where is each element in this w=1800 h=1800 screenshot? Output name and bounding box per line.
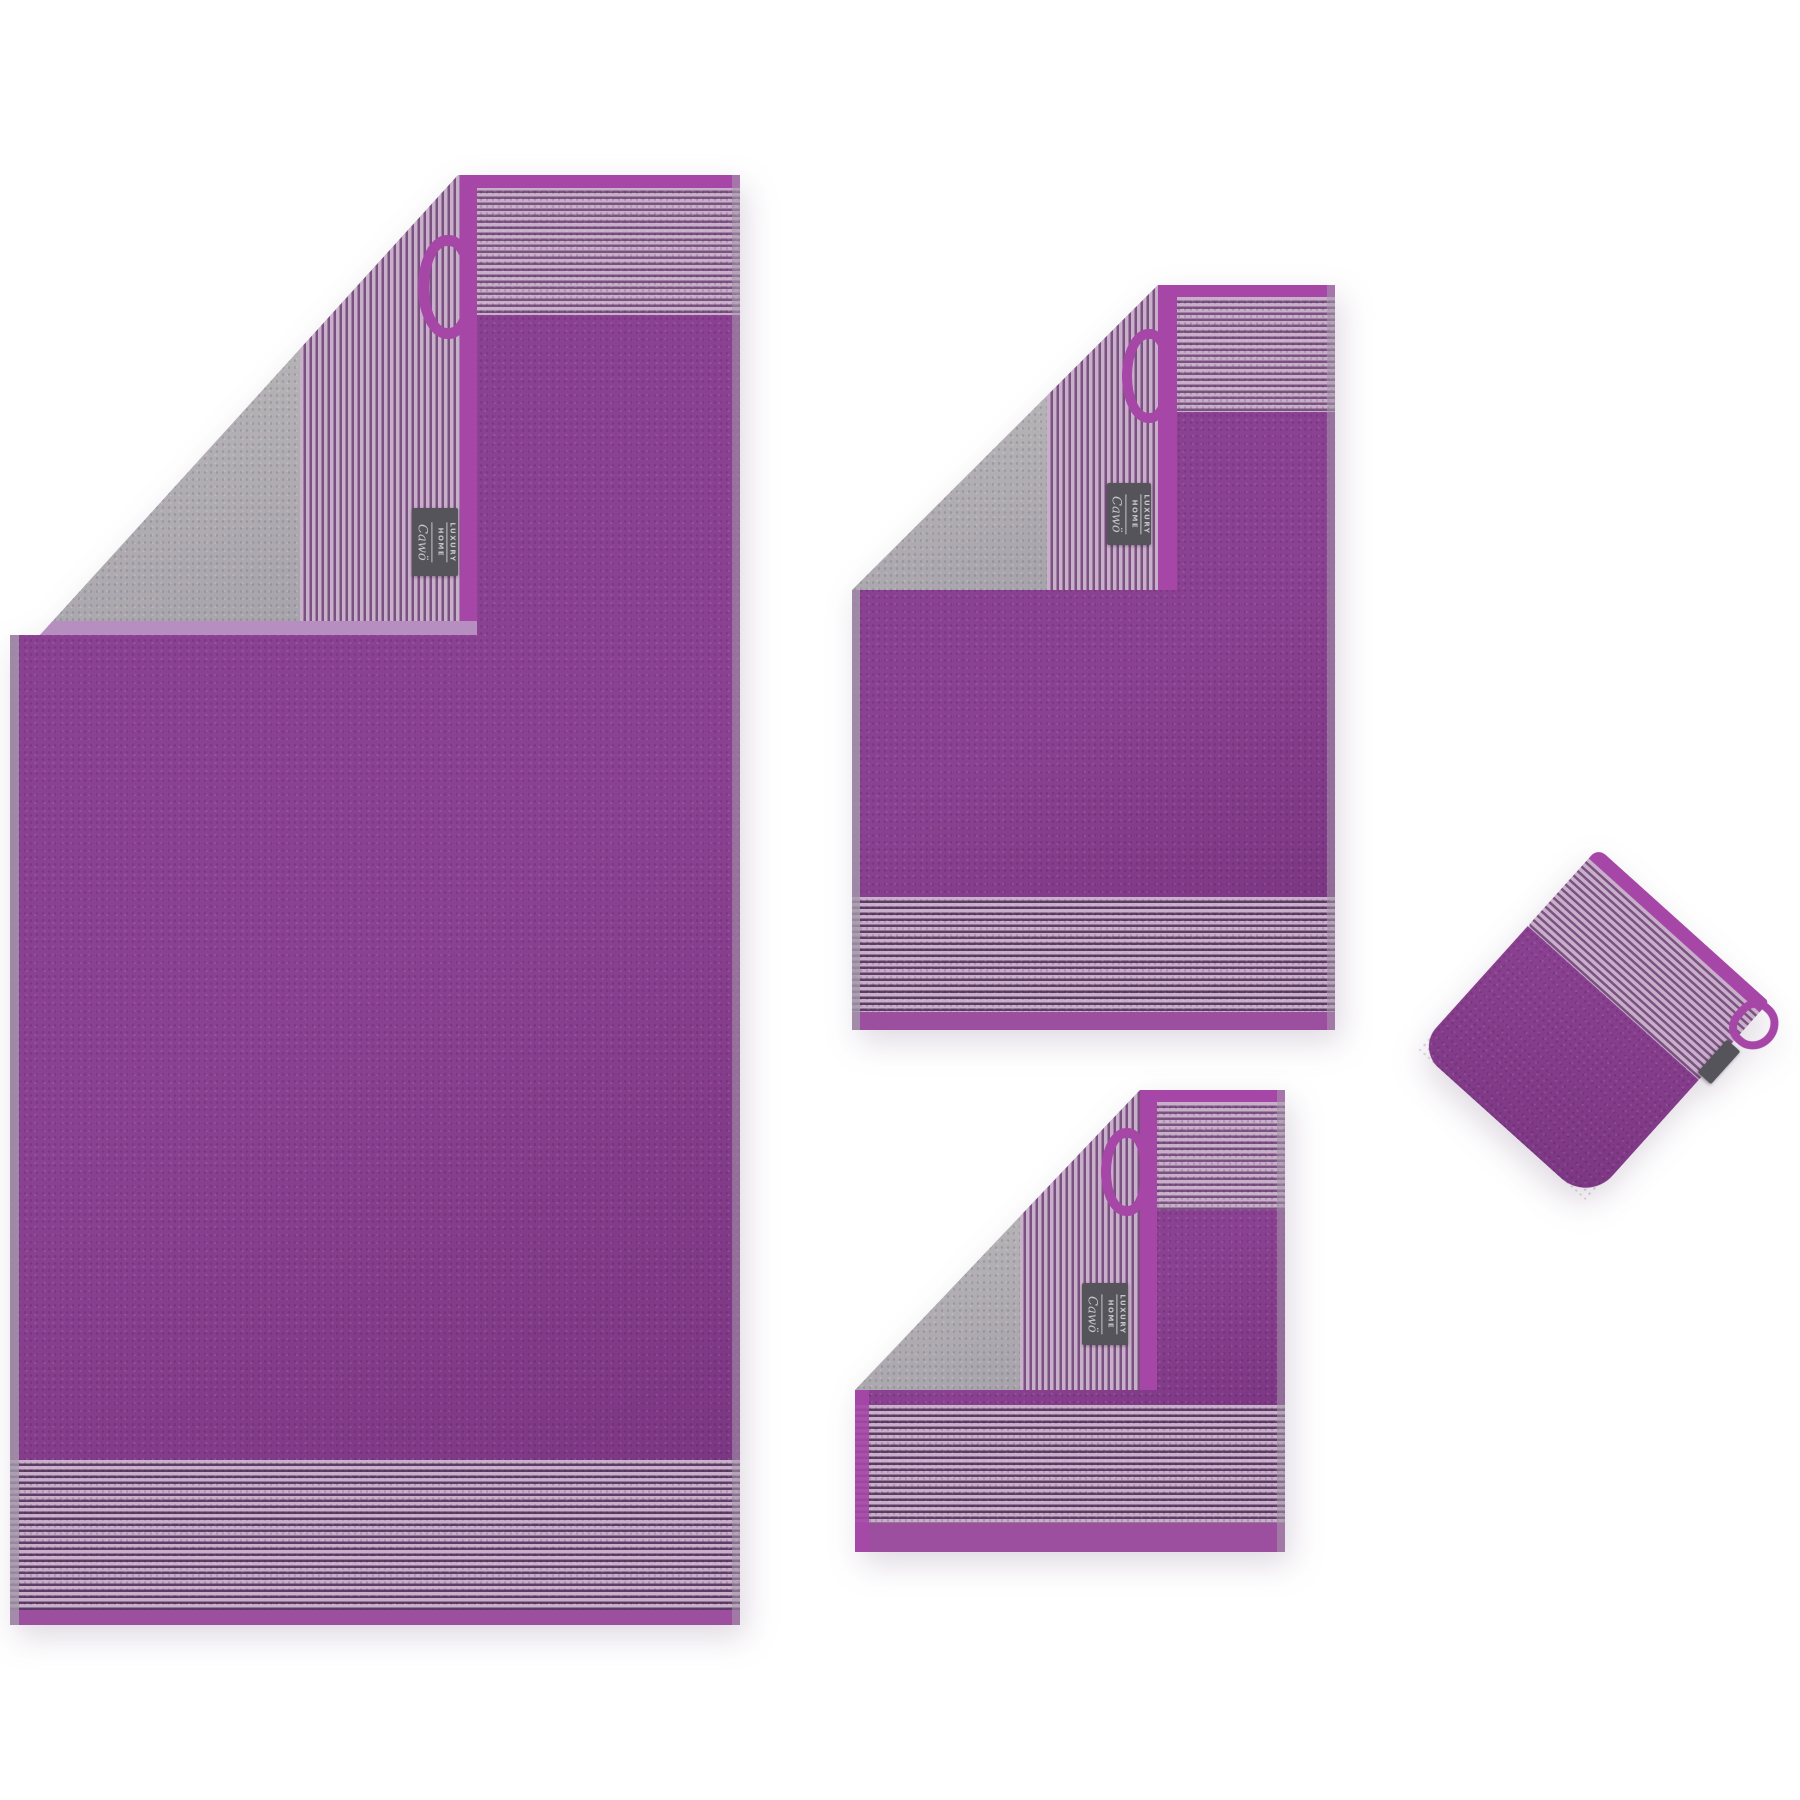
brand-tag-text: LUXURY HOME Cawö	[1108, 494, 1151, 534]
brand-tag: LUXURY HOME Cawö	[1107, 483, 1151, 545]
guest-towel: LUXURY HOME Cawö	[855, 1090, 1285, 1552]
top-edge-trim	[455, 175, 740, 188]
tag-line-luxury: LUXURY	[1142, 494, 1151, 534]
tag-line-home: HOME	[1106, 1294, 1118, 1334]
wash-mitt	[1417, 848, 1769, 1203]
tag-line-home: HOME	[436, 522, 448, 562]
brand-tag-text: LUXURY HOME Cawö	[1084, 1294, 1127, 1334]
striped-bottom-border	[10, 1460, 740, 1610]
tag-line-home: HOME	[1130, 494, 1142, 534]
fold-edge-trim	[1158, 285, 1177, 590]
bottom-hem	[10, 1610, 740, 1625]
bottom-hem	[852, 1012, 1335, 1030]
folded-corner-reverse-side	[10, 175, 477, 635]
fold-edge-trim	[1140, 1090, 1157, 1390]
left-edge-trim	[855, 1390, 869, 1552]
left-edge	[852, 590, 860, 1030]
bottom-hem	[855, 1523, 1285, 1552]
right-edge	[1327, 285, 1335, 1030]
tag-line-luxury: LUXURY	[448, 522, 457, 562]
tag-brand-cawo: Cawö	[414, 522, 433, 562]
tag-brand-cawo: Cawö	[1084, 1294, 1103, 1334]
bath-towel: LUXURY HOME Cawö	[10, 175, 740, 1625]
brand-tag: LUXURY HOME Cawö	[1082, 1283, 1128, 1345]
top-edge-trim	[1135, 1090, 1285, 1102]
hand-towel: LUXURY HOME Cawö	[852, 285, 1335, 1030]
fold-hem	[40, 621, 477, 635]
striped-bottom-border	[855, 1405, 1285, 1523]
product-photo-canvas: LUXURY HOME Cawö LUXURY HOME	[0, 0, 1800, 1800]
brand-tag: LUXURY HOME Cawö	[412, 508, 458, 576]
right-edge	[1277, 1090, 1285, 1552]
fold-edge-trim	[460, 175, 477, 635]
folded-corner-reverse-side	[855, 1090, 1157, 1390]
top-edge-trim	[1155, 285, 1335, 297]
left-edge	[10, 635, 19, 1625]
striped-bottom-border	[852, 897, 1335, 1012]
right-edge	[732, 175, 740, 1625]
tag-line-luxury: LUXURY	[1118, 1294, 1127, 1334]
tag-brand-cawo: Cawö	[1108, 494, 1127, 534]
brand-tag-text: LUXURY HOME Cawö	[414, 522, 457, 562]
